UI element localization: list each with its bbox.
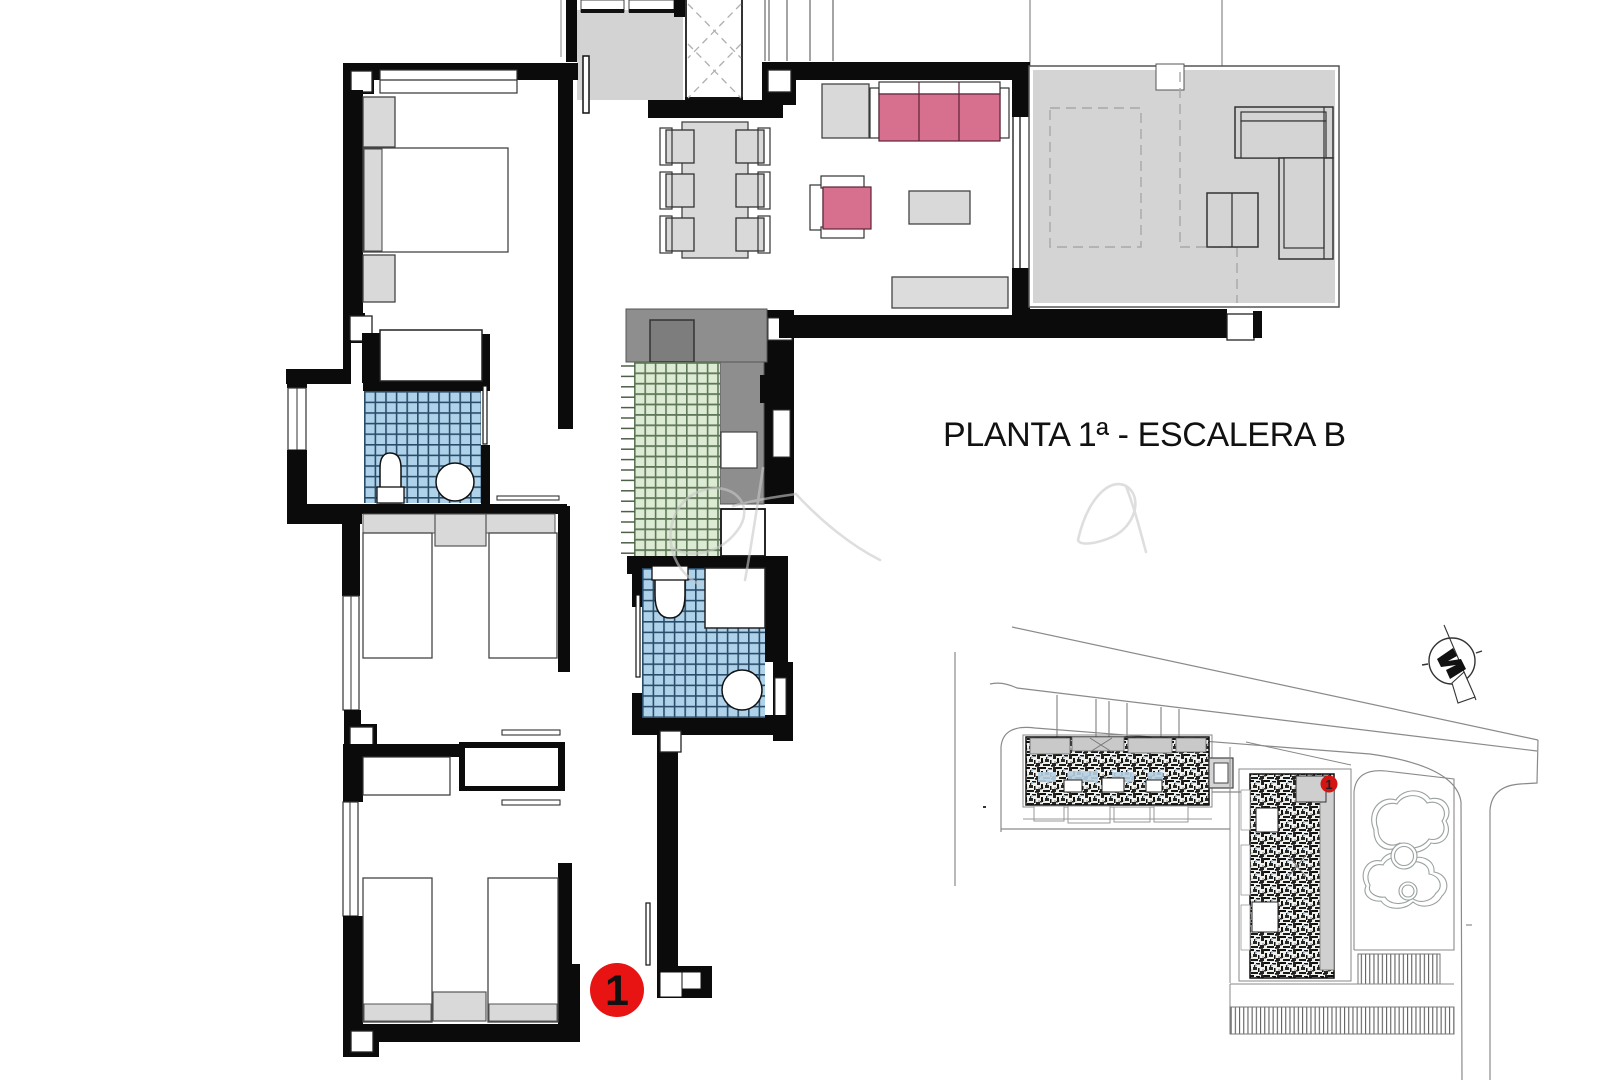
svg-text:1: 1: [605, 967, 629, 1015]
svg-text:1: 1: [1325, 777, 1332, 792]
svg-text:PLANTA 1ª - ESCALERA B: PLANTA 1ª - ESCALERA B: [943, 416, 1347, 454]
